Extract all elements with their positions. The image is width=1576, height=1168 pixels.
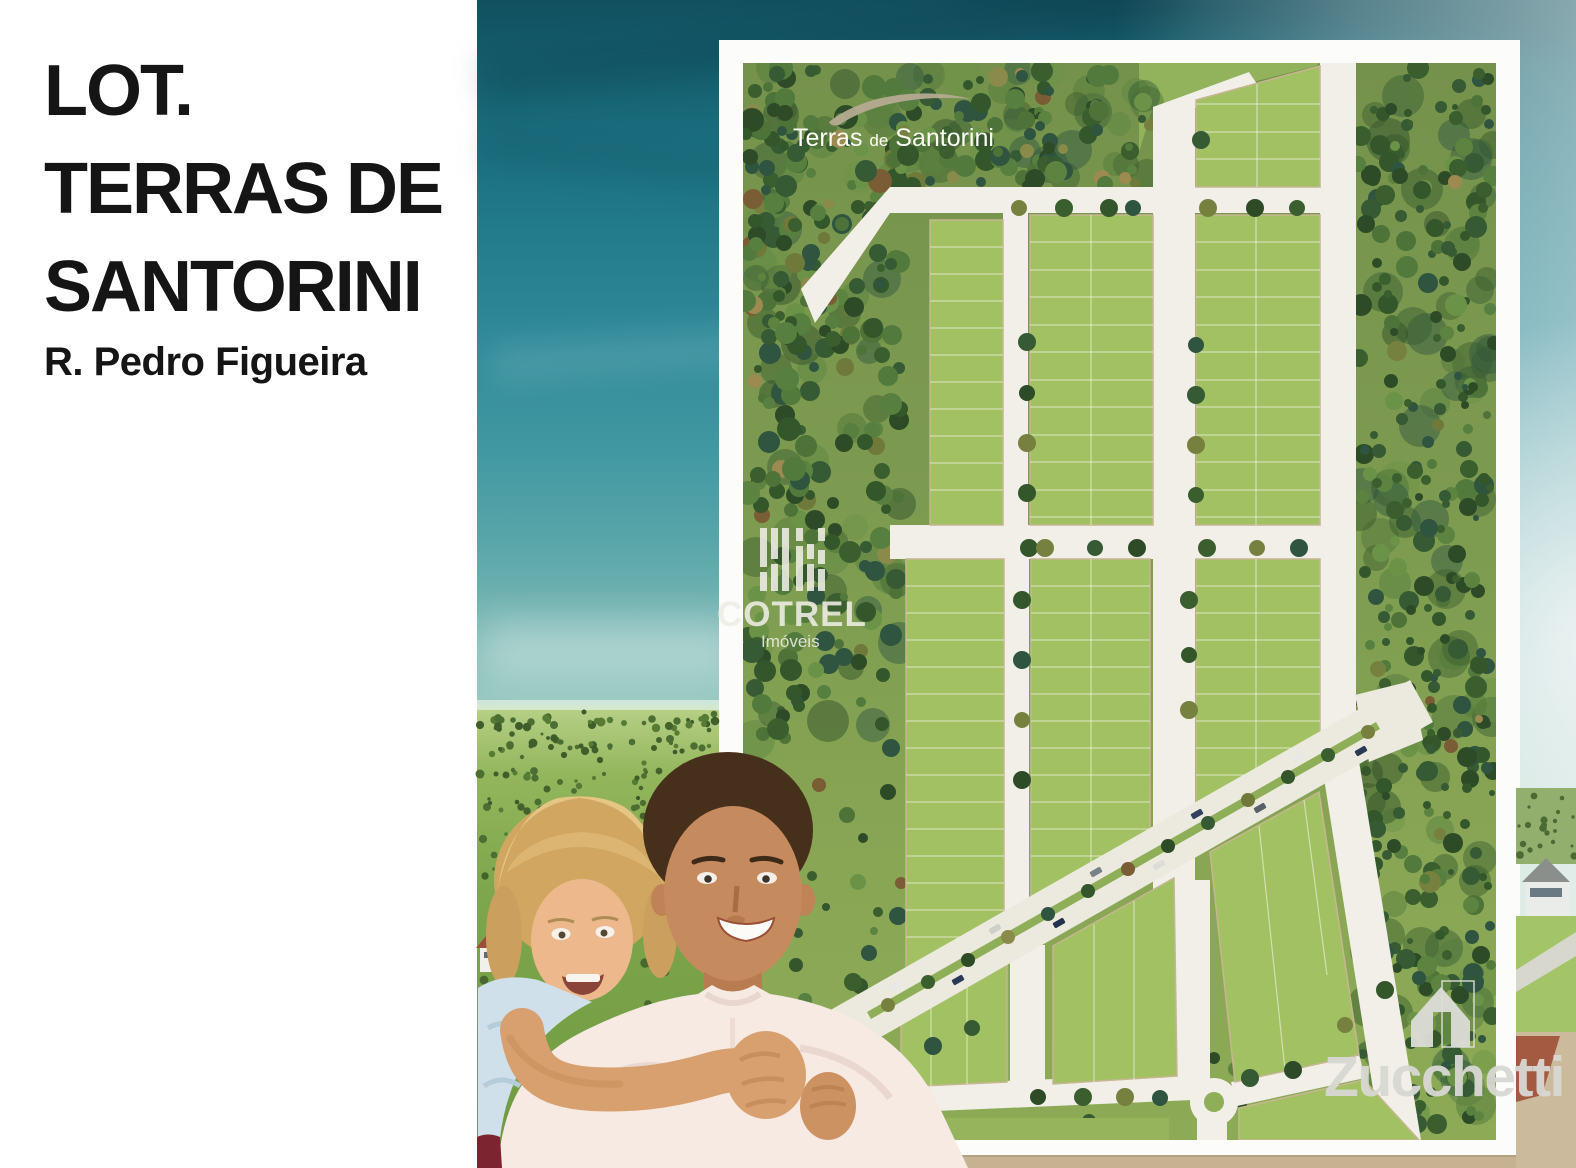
svg-text:Imóveis: Imóveis [761,632,820,651]
svg-text:COTREL: COTREL [717,595,867,634]
svg-text:Terras de Santorini: Terras de Santorini [793,124,994,152]
svg-text:Zucchetti: Zucchetti [1324,1045,1564,1109]
